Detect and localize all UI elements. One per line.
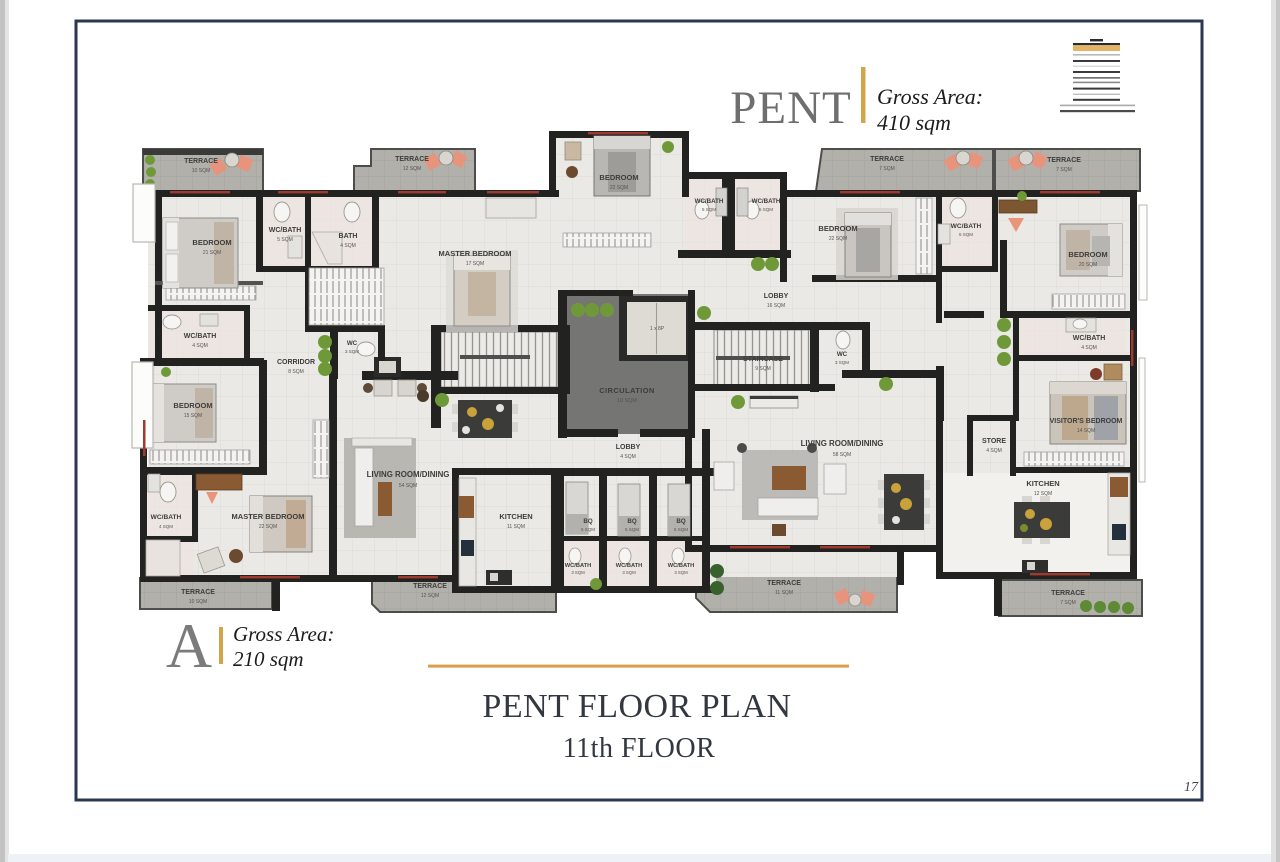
svg-text:STORE: STORE bbox=[982, 438, 1006, 445]
svg-text:WC/BATH: WC/BATH bbox=[269, 227, 302, 234]
svg-text:CORRIDOR: CORRIDOR bbox=[277, 359, 315, 366]
svg-text:3 SQM: 3 SQM bbox=[622, 570, 636, 575]
svg-text:TERRACE: TERRACE bbox=[413, 583, 447, 590]
svg-text:8 SQM: 8 SQM bbox=[288, 369, 304, 375]
svg-text:WC/BATH: WC/BATH bbox=[951, 223, 982, 230]
svg-text:11 SQM: 11 SQM bbox=[507, 524, 525, 530]
svg-text:WC/BATH: WC/BATH bbox=[184, 333, 217, 340]
svg-text:10 SQM: 10 SQM bbox=[192, 168, 210, 174]
svg-text:12 SQM: 12 SQM bbox=[421, 593, 439, 599]
svg-text:WC: WC bbox=[347, 340, 358, 347]
svg-text:BEDROOM: BEDROOM bbox=[173, 401, 212, 410]
svg-text:BQ: BQ bbox=[583, 518, 592, 525]
svg-text:10 SQM: 10 SQM bbox=[189, 599, 207, 605]
svg-text:410 sqm: 410 sqm bbox=[877, 110, 951, 135]
svg-text:WC/BATH: WC/BATH bbox=[565, 563, 591, 569]
svg-text:3 SQM: 3 SQM bbox=[345, 349, 359, 354]
svg-text:CIRCULATION: CIRCULATION bbox=[599, 386, 655, 395]
svg-text:58 SQM: 58 SQM bbox=[833, 452, 851, 458]
svg-text:4 SQM: 4 SQM bbox=[340, 243, 356, 249]
svg-text:WC/BATH: WC/BATH bbox=[1073, 335, 1106, 342]
svg-text:KITCHEN: KITCHEN bbox=[499, 512, 532, 521]
svg-text:WC/BATH: WC/BATH bbox=[616, 563, 642, 569]
svg-text:TERRACE: TERRACE bbox=[767, 580, 801, 587]
svg-text:5 SQM: 5 SQM bbox=[277, 237, 293, 243]
svg-text:7 SQM: 7 SQM bbox=[879, 166, 895, 172]
svg-text:21 SQM: 21 SQM bbox=[203, 250, 221, 256]
svg-text:LOBBY: LOBBY bbox=[764, 293, 789, 300]
svg-text:MASTER BEDROOM: MASTER BEDROOM bbox=[439, 249, 512, 258]
svg-text:9 SQM: 9 SQM bbox=[755, 366, 771, 372]
svg-text:WC/BATH: WC/BATH bbox=[695, 198, 724, 205]
svg-text:54 SQM: 54 SQM bbox=[399, 483, 417, 489]
svg-text:WC/BATH: WC/BATH bbox=[151, 514, 182, 521]
svg-text:5 SQM: 5 SQM bbox=[625, 527, 639, 532]
svg-text:TERRACE: TERRACE bbox=[870, 156, 904, 163]
svg-text:LOBBY: LOBBY bbox=[616, 444, 641, 451]
svg-text:16 SQM: 16 SQM bbox=[767, 303, 785, 309]
svg-text:3 SQM: 3 SQM bbox=[674, 570, 688, 575]
svg-text:TERRACE: TERRACE bbox=[1047, 157, 1081, 164]
svg-text:3 SQM: 3 SQM bbox=[835, 360, 849, 365]
svg-text:22 SQM: 22 SQM bbox=[610, 185, 628, 191]
svg-text:22 SQM: 22 SQM bbox=[259, 524, 277, 530]
svg-text:4 SQM: 4 SQM bbox=[159, 524, 173, 529]
svg-text:BEDROOM: BEDROOM bbox=[599, 173, 638, 182]
svg-text:1 x 8P: 1 x 8P bbox=[650, 326, 665, 332]
svg-text:WC: WC bbox=[837, 351, 848, 358]
svg-text:KITCHEN: KITCHEN bbox=[1026, 479, 1059, 488]
svg-text:17: 17 bbox=[1184, 780, 1199, 795]
svg-text:A: A bbox=[166, 610, 212, 681]
svg-text:5 SQM: 5 SQM bbox=[959, 232, 973, 237]
svg-text:4 SQM: 4 SQM bbox=[986, 448, 1002, 454]
svg-text:BEDROOM: BEDROOM bbox=[192, 238, 231, 247]
svg-text:10 SQM: 10 SQM bbox=[617, 398, 637, 404]
svg-text:15 SQM: 15 SQM bbox=[184, 413, 202, 419]
svg-text:LIVING ROOM/DINING: LIVING ROOM/DINING bbox=[801, 439, 884, 448]
svg-text:14 SQM: 14 SQM bbox=[1077, 428, 1095, 434]
svg-text:22 SQM: 22 SQM bbox=[829, 236, 847, 242]
svg-text:5 SQM: 5 SQM bbox=[581, 527, 595, 532]
svg-text:BQ: BQ bbox=[627, 518, 636, 525]
svg-text:210 sqm: 210 sqm bbox=[233, 647, 304, 671]
svg-text:BEDROOM: BEDROOM bbox=[818, 224, 857, 233]
svg-text:3 SQM: 3 SQM bbox=[571, 570, 585, 575]
svg-text:BQ: BQ bbox=[676, 518, 685, 525]
svg-text:BATH: BATH bbox=[339, 233, 358, 240]
svg-text:5 SQM: 5 SQM bbox=[759, 207, 773, 212]
svg-text:11 SQM: 11 SQM bbox=[775, 590, 793, 596]
svg-text:12 SQM: 12 SQM bbox=[403, 166, 421, 172]
svg-text:17 SQM: 17 SQM bbox=[466, 261, 484, 267]
svg-text:STAIRCASE: STAIRCASE bbox=[743, 356, 783, 363]
svg-text:TERRACE: TERRACE bbox=[181, 589, 215, 596]
svg-text:4 SQM: 4 SQM bbox=[192, 343, 208, 349]
svg-text:7 SQM: 7 SQM bbox=[1056, 167, 1072, 173]
svg-text:PENT: PENT bbox=[730, 82, 852, 134]
svg-text:Gross Area:: Gross Area: bbox=[877, 84, 983, 109]
svg-text:TERRACE: TERRACE bbox=[1051, 590, 1085, 597]
svg-text:Gross Area:: Gross Area: bbox=[233, 622, 334, 646]
svg-text:11th FLOOR: 11th FLOOR bbox=[563, 733, 716, 764]
svg-text:12 SQM: 12 SQM bbox=[1034, 491, 1052, 497]
svg-text:PENT FLOOR PLAN: PENT FLOOR PLAN bbox=[482, 688, 791, 725]
svg-text:TERRACE: TERRACE bbox=[395, 156, 429, 163]
svg-text:5 SQM: 5 SQM bbox=[702, 207, 716, 212]
svg-text:MASTER BEDROOM: MASTER BEDROOM bbox=[232, 512, 305, 521]
svg-text:WC/BATH: WC/BATH bbox=[752, 198, 781, 205]
svg-text:VISITOR'S BEDROOM: VISITOR'S BEDROOM bbox=[1050, 418, 1123, 425]
svg-text:TERRACE: TERRACE bbox=[184, 158, 218, 165]
svg-text:LIVING ROOM/DINING: LIVING ROOM/DINING bbox=[367, 470, 450, 479]
svg-text:5 SQM: 5 SQM bbox=[674, 527, 688, 532]
svg-text:7 SQM: 7 SQM bbox=[1060, 600, 1076, 606]
svg-text:4 SQM: 4 SQM bbox=[620, 454, 636, 460]
svg-text:WC/BATH: WC/BATH bbox=[668, 563, 694, 569]
svg-text:4 SQM: 4 SQM bbox=[1081, 345, 1097, 351]
svg-text:20 SQM: 20 SQM bbox=[1079, 262, 1097, 268]
svg-text:BEDROOM: BEDROOM bbox=[1068, 250, 1107, 259]
